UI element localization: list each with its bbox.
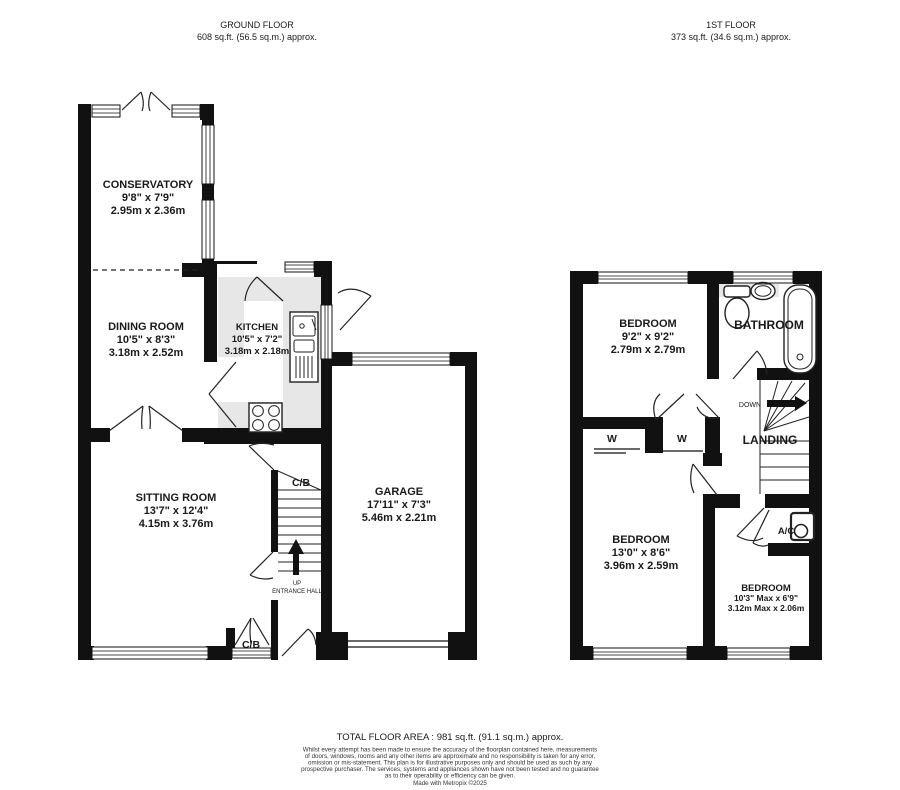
down-label: DOWN <box>739 402 761 409</box>
ground-walls-part <box>271 600 278 660</box>
bedroom1-window-part <box>598 272 688 283</box>
bathroom-window-part <box>733 272 793 283</box>
toilet-icon-part <box>724 286 750 297</box>
dining-sitting-double-door-part <box>142 406 143 429</box>
floorplan-page: GROUND FLOOR 608 sq.ft. (56.5 sq.m.) app… <box>0 0 900 790</box>
bedroom3-imperial: 10'3" Max x 6'9" <box>734 593 798 603</box>
airing-cupboard-label: A/C <box>778 526 795 537</box>
down-arrow-part <box>795 396 807 411</box>
front-entrance-door-part <box>308 629 316 645</box>
sitting-room-window <box>92 647 208 659</box>
ground-walls-part <box>271 470 278 552</box>
up-arrow-part <box>293 554 299 575</box>
dining-imperial: 10'5" x 8'3" <box>117 334 175 346</box>
conservatory-imperial: 9'8" x 7'9" <box>122 192 174 204</box>
up-label: UP <box>293 581 301 587</box>
dining-name: DINING ROOM <box>108 321 184 333</box>
bedroom2-window <box>593 648 687 659</box>
plan-headers: GROUND FLOOR 608 sq.ft. (56.5 sq.m.) app… <box>197 20 791 42</box>
bedroom1-door <box>654 394 719 420</box>
bedroom3-door <box>737 508 764 541</box>
kitchen-sink-unit <box>290 312 318 382</box>
conservatory-window-left <box>92 105 120 117</box>
conservatory-side-window-upper <box>202 125 214 184</box>
bedroom2-imperial: 13'0" x 8'6" <box>612 547 670 559</box>
sitting-name: SITTING ROOM <box>136 492 217 504</box>
first-walls-part <box>705 417 720 453</box>
ground-walls-part <box>78 104 91 660</box>
ground-walls-part <box>182 428 206 442</box>
side-passage-door-part <box>338 289 371 296</box>
conservatory-french-doors-part <box>151 92 170 110</box>
wardrobe-left-label: W <box>607 433 617 445</box>
garage-window <box>352 353 450 365</box>
first-walls-part <box>570 271 598 284</box>
first-walls-part <box>707 271 719 379</box>
sitting-hall-door-lower <box>250 552 273 579</box>
first-walls-part <box>765 494 822 508</box>
conservatory-french-doors-part <box>141 92 143 111</box>
bedroom2-metric: 3.96m x 2.59m <box>604 560 679 572</box>
ground-walls-part <box>321 261 332 305</box>
kitchen-name: KITCHEN <box>236 322 278 333</box>
first-walls-part <box>570 417 657 429</box>
bedroom3-window <box>727 648 790 659</box>
conservatory-side-window-lower-part <box>202 200 214 259</box>
garage-name: GARAGE <box>375 486 423 498</box>
ground-floor-title: GROUND FLOOR <box>220 20 294 30</box>
bathroom-window <box>733 272 793 283</box>
kitchen-imperial: 10'5" x 7'2" <box>232 334 283 345</box>
ground-walls-part <box>202 184 214 200</box>
bedroom2-door-part <box>691 464 694 493</box>
bedroom2-door <box>691 464 717 495</box>
dining-sitting-double-door-part <box>109 406 143 431</box>
ground-walls-part <box>316 632 334 660</box>
conservatory-french-doors-part <box>122 92 141 110</box>
front-entrance-door-part <box>282 629 308 656</box>
ground-walls-part <box>78 428 110 442</box>
first-walls-part <box>703 494 740 508</box>
bathroom-door-part <box>733 351 757 379</box>
landing-label: LANDING <box>743 433 798 447</box>
bedroom2-window-part <box>593 648 687 659</box>
dining-metric: 3.18m x 2.52m <box>109 347 184 359</box>
first-walls-part <box>703 508 715 648</box>
conservatory-side-window-upper-part <box>202 125 214 184</box>
first-walls-part <box>570 271 583 660</box>
kitchen-side-window-part <box>321 305 332 359</box>
kitchen-counters-part <box>218 277 244 357</box>
ground-walls-part <box>332 632 348 660</box>
conservatory-french-doors <box>122 92 170 111</box>
ground-walls-part <box>226 628 235 650</box>
bedroom3-window-part <box>727 648 790 659</box>
basin-icon <box>751 283 775 300</box>
first-walls-part <box>570 646 593 660</box>
disclaimer-line: as to their operability or efficiency ca… <box>385 773 516 780</box>
first-floor-title: 1ST FLOOR <box>706 20 756 30</box>
garage-window-part <box>352 353 450 365</box>
bedroom2-door-part <box>693 464 717 495</box>
side-passage-door-part <box>340 296 371 330</box>
sitting-hall-door-lower-part <box>250 575 273 579</box>
bedroom3-door-part <box>737 536 763 541</box>
conservatory-metric: 2.95m x 2.36m <box>111 205 186 217</box>
metropix-credit: Made with Metropix ©2025 <box>413 780 487 787</box>
airing-cupboard-door-part <box>753 510 769 543</box>
first-walls-part <box>703 453 722 466</box>
sitting-hall-door-upper-part <box>249 446 274 470</box>
garage-door <box>348 641 448 647</box>
first-walls-part <box>790 646 822 660</box>
sitting-hall-door-lower-part <box>250 552 273 575</box>
first-walls-part <box>687 646 727 660</box>
cb-stairs-label: C/B <box>292 477 311 489</box>
cb-front-label: C/B <box>242 639 261 651</box>
conservatory-name: CONSERVATORY <box>103 179 194 191</box>
ground-walls-part <box>321 444 332 640</box>
ground-walls-part <box>332 352 352 366</box>
first-walls-part <box>645 417 663 453</box>
first-floor-area: 373 sq.ft. (34.6 sq.m.) approx. <box>671 32 791 42</box>
kitchen-metric: 3.18m x 2.18m <box>225 346 289 357</box>
kitchen-side-window <box>321 305 332 359</box>
dining-kitchen-door-part <box>209 362 236 394</box>
garage-imperial: 17'11" x 7'3" <box>367 499 431 511</box>
kitchen-top-window <box>285 262 314 272</box>
front-entrance-door <box>282 629 316 656</box>
conservatory-side-window-lower <box>202 200 214 259</box>
sitting-hall-door-upper <box>249 443 274 470</box>
dining-sitting-double-door <box>109 406 183 431</box>
conservatory-window-right <box>172 105 200 117</box>
water-cylinder-icon-part <box>791 513 814 540</box>
ground-walls-part <box>202 104 214 125</box>
bedroom1-door-part <box>656 394 684 420</box>
bedroom1-name: BEDROOM <box>619 318 676 330</box>
garage-metric: 5.46m x 2.21m <box>362 512 437 524</box>
hob-icon <box>249 403 282 432</box>
conservatory-window-left-part <box>92 105 120 117</box>
total-floor-area: TOTAL FLOOR AREA : 981 sq.ft. (91.1 sq.m… <box>337 732 564 743</box>
water-cylinder-icon <box>791 513 814 540</box>
ground-floor-plan: CONSERVATORY 9'8" x 7'9" 2.95m x 2.36m D… <box>78 92 477 660</box>
first-floor-plan: BEDROOM 9'2" x 9'2" 2.79m x 2.79m BATHRO… <box>570 271 822 660</box>
wardrobe-right-label: W <box>677 433 687 445</box>
dining-sitting-double-door-part <box>149 406 150 429</box>
kitchen-top-window-part <box>285 262 314 272</box>
bedroom1-imperial: 9'2" x 9'2" <box>622 331 674 343</box>
plan-footer: TOTAL FLOOR AREA : 981 sq.ft. (91.1 sq.m… <box>301 732 599 787</box>
bedroom1-door-part <box>654 394 660 420</box>
bedroom3-metric: 3.12m Max x 2.06m <box>728 603 805 613</box>
sitting-metric: 4.15m x 3.76m <box>139 518 214 530</box>
bedroom3-door-part <box>737 508 764 536</box>
sitting-room-window-part <box>92 647 208 659</box>
floorplan-canvas: GROUND FLOOR 608 sq.ft. (56.5 sq.m.) app… <box>0 0 900 790</box>
sitting-imperial: 13'7" x 12'4" <box>144 505 209 517</box>
bedroom1-window <box>598 272 688 283</box>
conservatory-french-doors-part <box>149 92 151 111</box>
entrance-hall-label: ENTRANCE HALL <box>272 589 322 595</box>
bathroom-label: BATHROOM <box>734 318 804 332</box>
conservatory-window-right-part <box>172 105 200 117</box>
ground-walls-part <box>465 352 477 660</box>
bedroom1-door-part <box>696 394 719 418</box>
up-arrow-part <box>288 539 304 554</box>
bedroom1-door-part <box>697 407 719 418</box>
ground-walls-part <box>204 263 217 362</box>
ground-floor-area: 608 sq.ft. (56.5 sq.m.) approx. <box>197 32 317 42</box>
side-passage-door <box>338 289 371 330</box>
first-walls-part <box>768 543 822 556</box>
airing-cupboard-door-part <box>753 543 768 546</box>
bedroom2-name: BEDROOM <box>612 534 669 546</box>
down-arrow-part <box>767 400 795 407</box>
bedroom1-metric: 2.79m x 2.79m <box>611 344 686 356</box>
dining-sitting-double-door-part <box>149 406 183 431</box>
